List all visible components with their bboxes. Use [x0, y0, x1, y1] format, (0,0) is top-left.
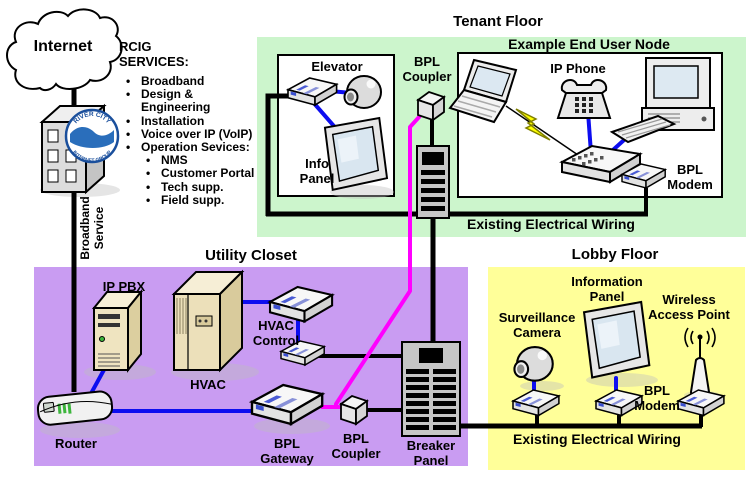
tenant-bpl-modem-label: BPLModem [667, 162, 713, 192]
ip-pbx-label: IP PBX [103, 279, 145, 294]
information-panel-label: InformationPanel [571, 274, 643, 304]
service-item: Engineering [119, 101, 269, 114]
lobby-floor-title: Lobby Floor [572, 246, 659, 263]
end-user-node-title: Example End User Node [508, 36, 670, 52]
tenant-floor-title: Tenant Floor [453, 13, 543, 30]
broadband-label-line1: Broadband [78, 188, 92, 268]
tenant-bpl-coupler-label: BPLCoupler [402, 54, 451, 84]
ip-pbx-icon [94, 292, 141, 370]
bpl-network-diagram: RIVER CITY INTERNET GROUP [0, 0, 750, 478]
utility-closet-title: Utility Closet [205, 247, 297, 264]
tenant-wiring-label: Existing Electrical Wiring [467, 216, 635, 232]
service-subitem: Customer Portal [119, 167, 269, 180]
wireless-access-point-label: WirelessAccess Point [648, 292, 730, 322]
breaker-panel-label: BreakerPanel [407, 438, 455, 468]
tenant-bpl-coupler-icon [418, 92, 444, 120]
internet-label: Internet [34, 38, 93, 56]
surveillance-camera-label: SurveillanceCamera [499, 310, 576, 340]
ip-phone-icon [558, 80, 610, 118]
info-panel-label: InfoPanel [300, 156, 335, 186]
lobby-wiring-label: Existing Electrical Wiring [513, 431, 681, 447]
router-label: Router [55, 436, 97, 451]
hvac-control-label: HVACControl [253, 318, 299, 348]
utility-bpl-coupler-icon [341, 396, 367, 424]
rcig-logo: RIVER CITY INTERNET GROUP [66, 110, 118, 164]
lobby-bpl-modem-label: BPLModem [634, 383, 680, 413]
hvac-icon [174, 272, 242, 370]
tenant-breaker-panel-icon [417, 146, 449, 218]
rcig-services-list: RCIG SERVICES: Broadband Design & Engine… [119, 39, 269, 207]
broadband-service-label: Broadband Service [78, 188, 106, 268]
bpl-gateway-label: BPLGateway [260, 436, 313, 466]
utility-bpl-coupler-label: BPLCoupler [331, 431, 380, 461]
rcig-heading-line2: SERVICES: [119, 54, 269, 69]
breaker-panel-icon [402, 342, 460, 436]
isp-building-icon: RIVER CITY INTERNET GROUP [42, 106, 118, 192]
hvac-label: HVAC [190, 377, 226, 392]
elevator-label: Elevator [311, 59, 362, 74]
service-item: Operation Sevices: [119, 141, 269, 154]
ip-phone-label: IP Phone [550, 61, 605, 76]
service-item: Installation [119, 115, 269, 128]
service-subitem: Field supp. [119, 194, 269, 207]
broadband-label-line2: Service [92, 188, 106, 268]
information-panel-icon [584, 302, 649, 377]
service-subitem: Tech supp. [119, 181, 269, 194]
rcig-heading-line1: RCIG [119, 39, 269, 54]
